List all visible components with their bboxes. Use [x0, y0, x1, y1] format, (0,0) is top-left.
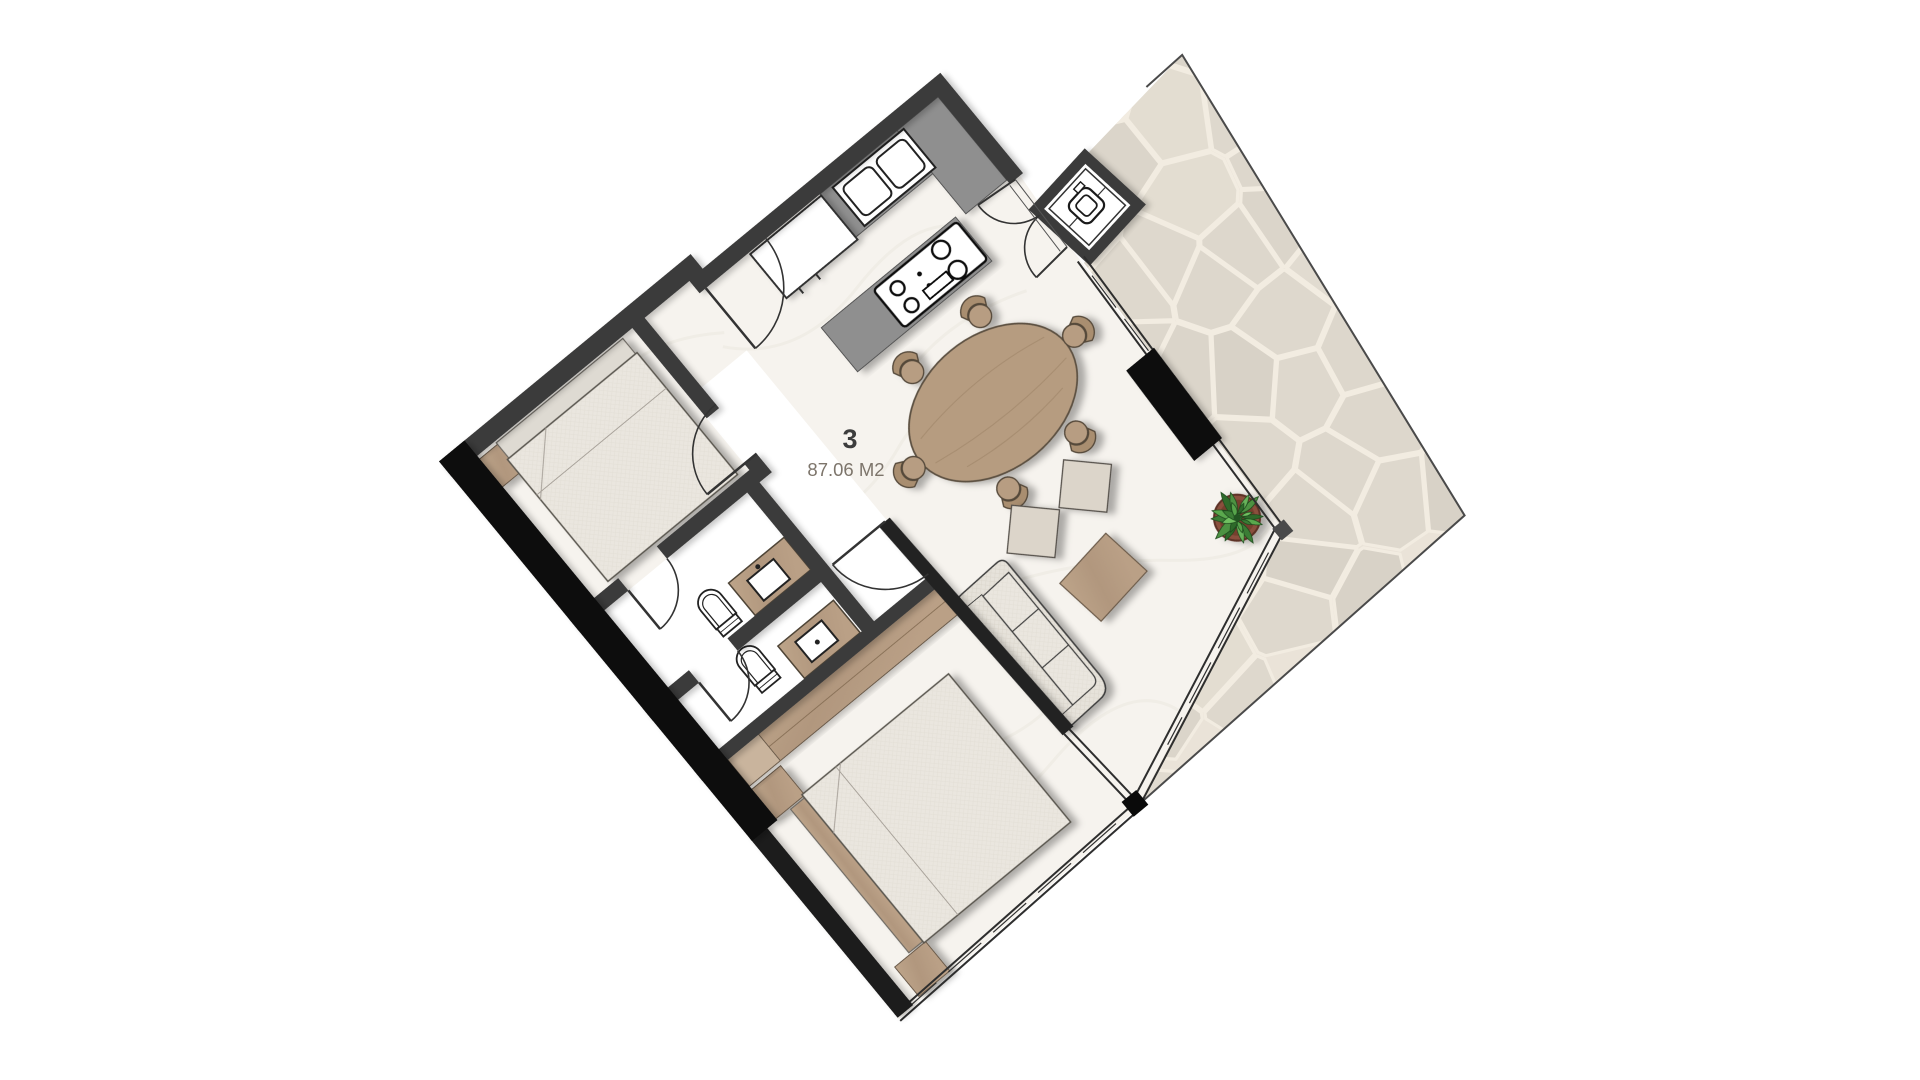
svg-text:3: 3 [842, 424, 857, 454]
svg-text:87.06 M2: 87.06 M2 [807, 459, 884, 480]
